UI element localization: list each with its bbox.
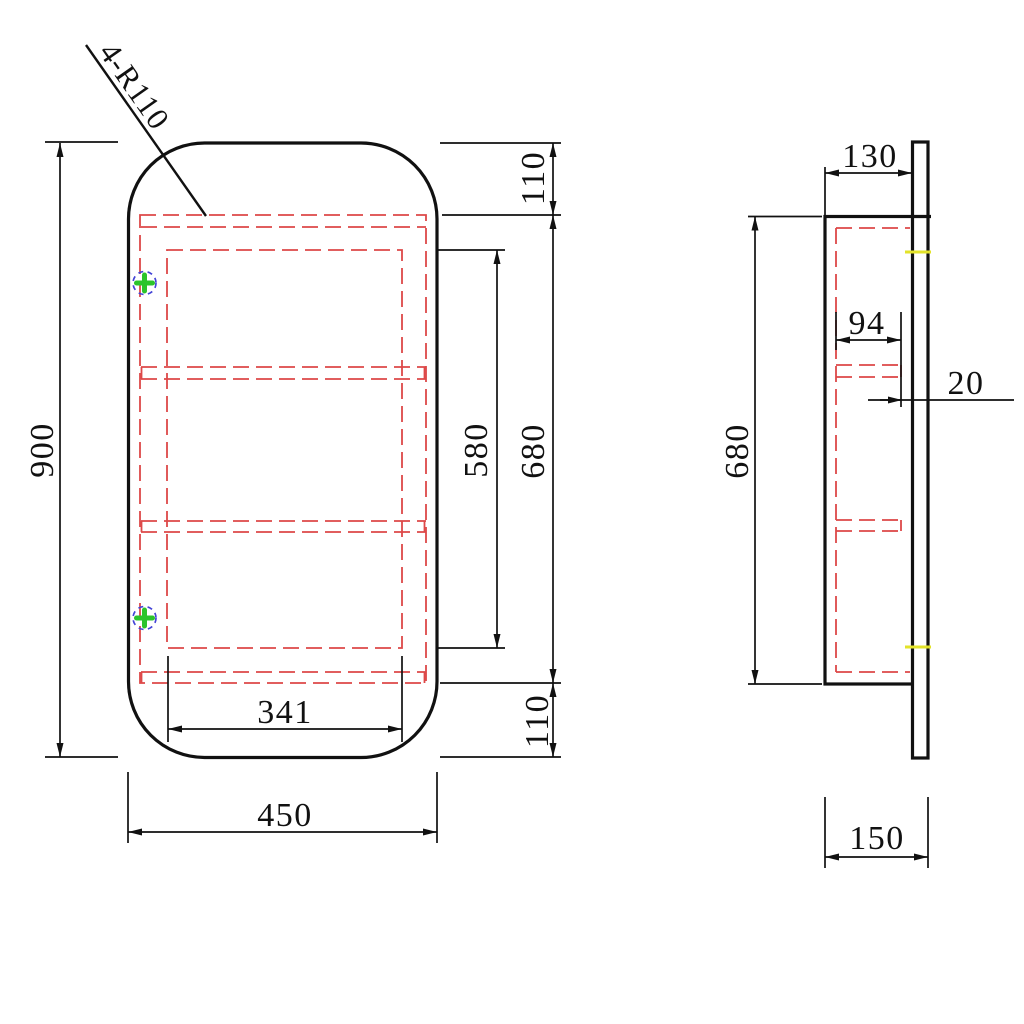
dimension-label: 20 — [948, 365, 985, 402]
side-body-outline — [825, 217, 913, 685]
dim-opening-height: 580 — [437, 250, 505, 648]
dimension-label: 450 — [257, 797, 313, 834]
dimension-label: 341 — [257, 694, 313, 731]
dim-overall-depth: 150 — [825, 797, 928, 868]
radius-label: 4-R110 — [92, 36, 177, 136]
dim-body-depth: 130 — [825, 138, 912, 216]
front-view: 4-R110 900 110 680 580 — [24, 36, 561, 843]
dimension-label: 150 — [849, 820, 905, 857]
dimension-label: 680 — [719, 423, 756, 479]
dimension-label: 110 — [519, 694, 556, 748]
dimension-label: 130 — [842, 138, 898, 175]
technical-drawing-canvas: 4-R110 900 110 680 580 — [0, 0, 1024, 1024]
cabinet-drawing: 4-R110 900 110 680 580 — [0, 0, 1024, 1024]
dimension-label: 680 — [515, 423, 552, 479]
dim-bottom-inset: 110 — [440, 683, 561, 757]
cabinet-outline — [129, 143, 438, 758]
dim-overall-height: 900 — [24, 142, 118, 757]
dim-top-inset: 110 — [440, 143, 561, 215]
mirror-door-panel — [913, 142, 929, 758]
dim-interior-height-side: 680 — [719, 217, 822, 685]
dimension-label: 94 — [849, 305, 886, 342]
dimension-label: 580 — [458, 422, 495, 478]
dimension-label: 900 — [24, 422, 61, 478]
side-view: 130 94 20 680 150 — [719, 138, 1014, 868]
dimension-label: 110 — [515, 151, 552, 205]
dim-overall-width: 450 — [128, 772, 437, 843]
